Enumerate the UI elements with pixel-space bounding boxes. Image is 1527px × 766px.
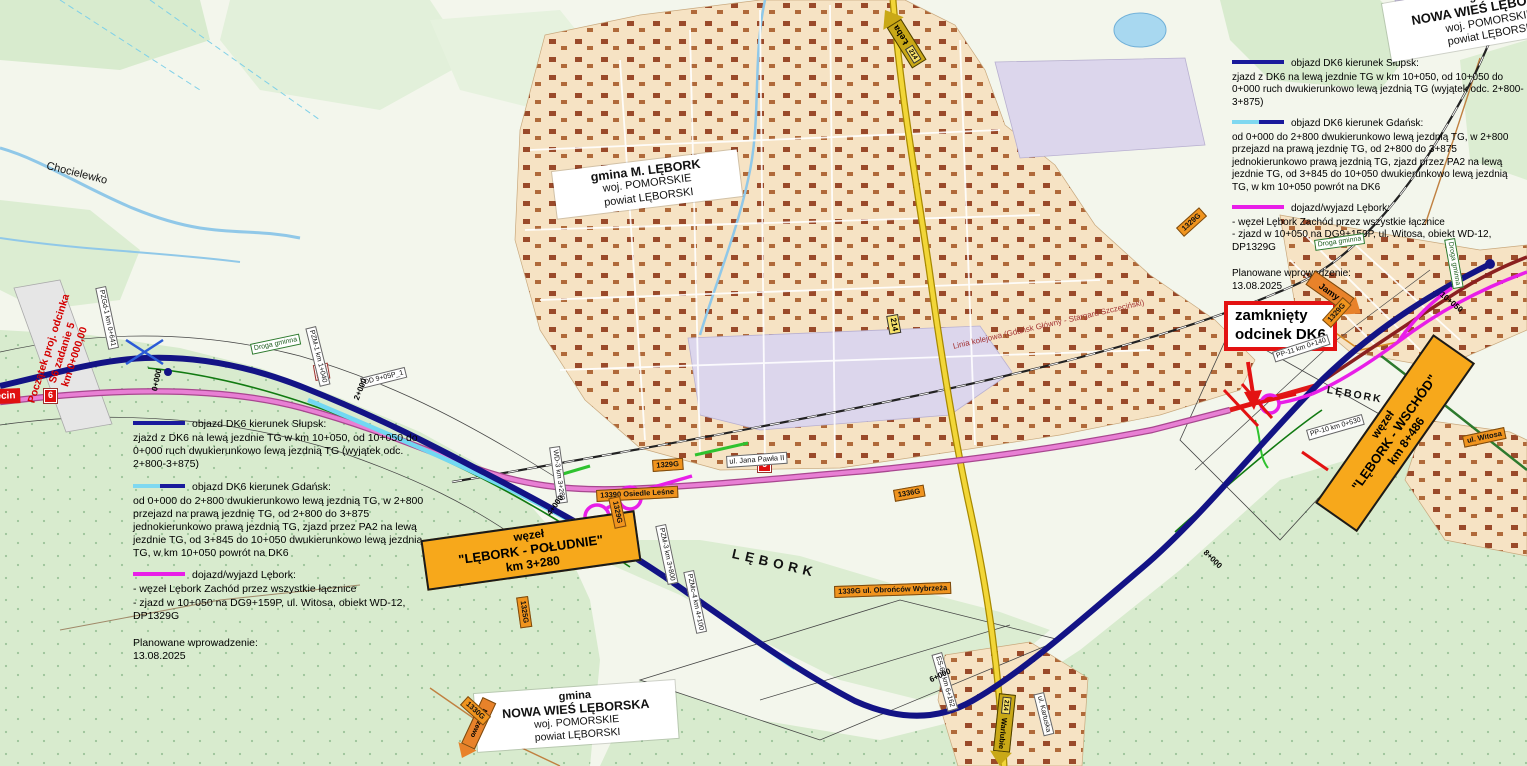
legend-footer-label: Planowane wprowadzenie: xyxy=(133,637,433,650)
legend-swatch-gdansk xyxy=(1232,120,1284,124)
arrow-destination: Jamy xyxy=(1317,281,1342,302)
legend-footer-label: Planowane wprowadzenie: xyxy=(1232,268,1524,281)
legend-body: - węzeł Lębork Zachód przez wszystkie łą… xyxy=(133,583,433,596)
legend-item-gdansk: objazd DK6 kierunek Gdańsk: od 0+000 do … xyxy=(1232,118,1524,194)
legend-body: od 0+000 do 2+800 dwukierunkowo lewą jez… xyxy=(133,495,433,561)
legend-swatch-slupsk xyxy=(1232,60,1284,64)
legend-item-gdansk: objazd DK6 kierunek Gdańsk: od 0+000 do … xyxy=(133,481,433,561)
legend-body: - zjazd w 10+050 na DG9+159P, ul. Witosa… xyxy=(1232,229,1524,254)
legend-swatch-lebork xyxy=(133,572,185,576)
dk6-shield: 6 xyxy=(44,389,57,403)
legend-body: - węzeł Lębork Zachód przez wszystkie łą… xyxy=(1232,217,1524,230)
legend-body: od 0+000 do 2+800 dwukierunkowo lewą jez… xyxy=(1232,132,1524,195)
legend-item-slupsk: objazd DK6 kierunek Słupsk: zjazd z DK6 … xyxy=(1232,58,1524,109)
legend-body: zjazd z DK6 na lewą jezdnie TG w km 10+0… xyxy=(133,432,433,471)
legend-footer-date: 13.08.2025 xyxy=(1232,281,1524,294)
legend-body: - zjazd w 10+050 na DG9+159P, ul. Witosa… xyxy=(133,597,433,623)
legend-title: dojazd/wyjazd Lębork: xyxy=(192,569,296,581)
legend-item-lebork: dojazd/wyjazd Lębork: - węzeł Lębork Zac… xyxy=(133,569,433,623)
closed-section-line1: zamknięty xyxy=(1235,307,1326,326)
legend-title: dojazd/wyjazd Lębork: xyxy=(1291,203,1390,214)
legend-title: objazd DK6 kierunek Gdańsk: xyxy=(1291,118,1423,129)
road-shield-1329g: 1329G xyxy=(652,458,683,472)
legend-swatch-gdansk xyxy=(133,484,185,488)
legend-top-right: objazd DK6 kierunek Słupsk: zjazd z DK6 … xyxy=(1232,58,1524,293)
legend-title: objazd DK6 kierunek Gdańsk: xyxy=(192,481,331,493)
legend-title: objazd DK6 kierunek Słupsk: xyxy=(192,418,326,430)
road-214-shield: 214 xyxy=(1000,696,1011,714)
legend-item-lebork: dojazd/wyjazd Lębork: - węzeł Lębork Zac… xyxy=(1232,203,1524,254)
road-214-shield: 214 xyxy=(905,45,922,64)
arrow-destination: Warlubie xyxy=(997,717,1009,749)
legend-swatch-lebork xyxy=(1232,205,1284,209)
legend-left: objazd DK6 kierunek Słupsk: zjazd z DK6 … xyxy=(133,418,433,663)
legend-body: zjazd z DK6 na lewą jezdnie TG w km 10+0… xyxy=(1232,72,1524,110)
arrow-head-icon xyxy=(989,751,1012,766)
legend-swatch-slupsk xyxy=(133,421,185,425)
arrow-destination: Łeba xyxy=(891,23,911,46)
detour-map-page: objazd DK6 kierunek Słupsk: zjazd z DK6 … xyxy=(0,0,1527,766)
szczecin-direction-badge: Szczecin xyxy=(0,388,21,405)
legend-footer-date: 13.08.2025 xyxy=(133,650,433,663)
legend-item-slupsk: objazd DK6 kierunek Słupsk: zjazd z DK6 … xyxy=(133,418,433,472)
